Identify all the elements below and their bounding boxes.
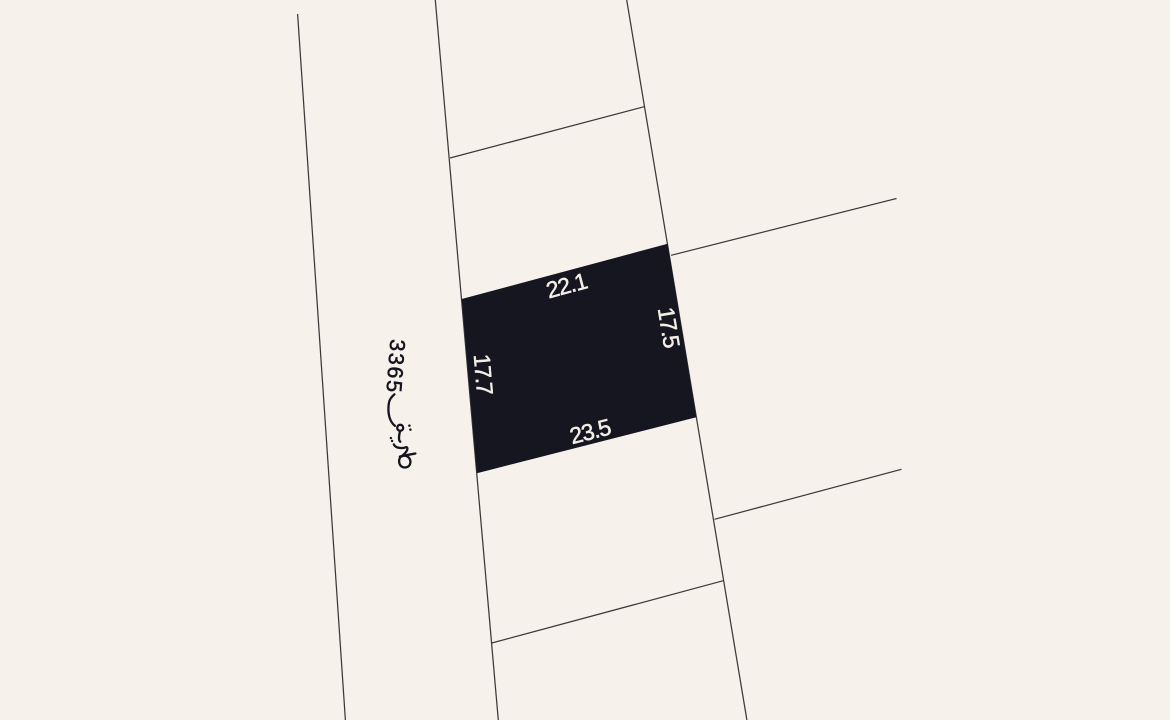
svg-text:3365: 3365 [381, 338, 409, 395]
svg-text:17.7: 17.7 [469, 353, 498, 395]
